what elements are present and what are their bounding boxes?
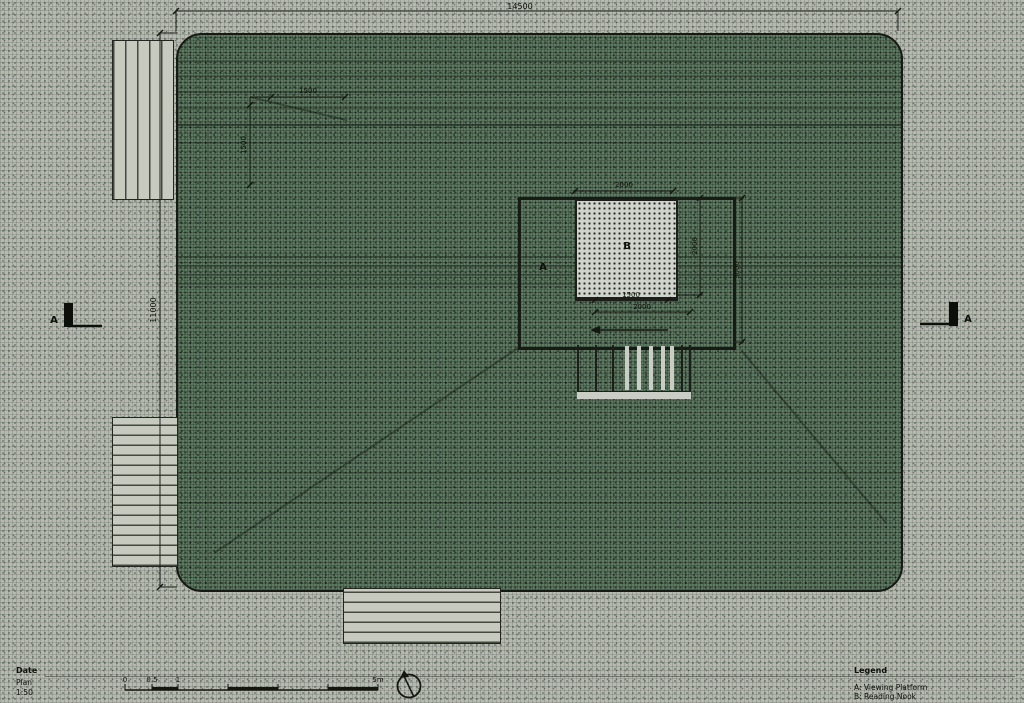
dimension-text: 2000 bbox=[633, 303, 651, 311]
annotation-layer: 14500 11000 1500 1500 2000 bbox=[0, 0, 1024, 703]
dimension-offsets-upper-left: 1500 1500 bbox=[240, 87, 348, 188]
dimension-overall-height: 11000 bbox=[149, 30, 177, 590]
legend-item-b: B: Reading Nook bbox=[854, 692, 916, 701]
dimension-text: 1500 bbox=[622, 291, 640, 299]
title-scale: 1:50 bbox=[16, 688, 33, 697]
scale-bar: 0 0.5 1 5m bbox=[123, 676, 384, 690]
dimension-building-width: 2000 bbox=[572, 181, 676, 194]
site-plan-sheet: 14500 11000 1500 1500 2000 bbox=[0, 0, 1024, 703]
north-arrow-icon bbox=[398, 670, 421, 698]
dimension-text: 3000 bbox=[733, 261, 741, 279]
section-marker-left: A bbox=[50, 303, 102, 327]
dimension-text: 1500 bbox=[299, 87, 317, 95]
building-label: B bbox=[623, 241, 631, 252]
section-label: A bbox=[964, 314, 972, 325]
dimension-overall-width: 14500 bbox=[173, 2, 901, 31]
scale-tick-label: 5m bbox=[372, 676, 383, 684]
platform-label: A bbox=[539, 262, 547, 273]
scale-tick-label: 1 bbox=[176, 676, 180, 684]
dimension-text: 14500 bbox=[507, 2, 532, 11]
title-date: Date bbox=[16, 666, 37, 675]
dimension-text: 11000 bbox=[149, 297, 158, 322]
title-plan: Plan bbox=[16, 678, 32, 687]
dimension-platform-height: 3000 bbox=[733, 195, 745, 345]
entry-arrow bbox=[590, 326, 668, 334]
legend-item-a: A: Viewing Platform bbox=[854, 683, 927, 692]
dimension-text: 1500 bbox=[240, 136, 248, 154]
scale-tick-label: 0.5 bbox=[146, 676, 157, 684]
dimension-text: 2000 bbox=[615, 181, 633, 189]
section-marker-right: A bbox=[920, 302, 972, 326]
scale-tick-label: 0 bbox=[123, 676, 127, 684]
legend-title: Legend bbox=[854, 666, 887, 675]
dimension-building-height: 2000 bbox=[676, 195, 703, 298]
dimension-text: 2000 bbox=[691, 237, 699, 255]
section-label: A bbox=[50, 315, 58, 326]
